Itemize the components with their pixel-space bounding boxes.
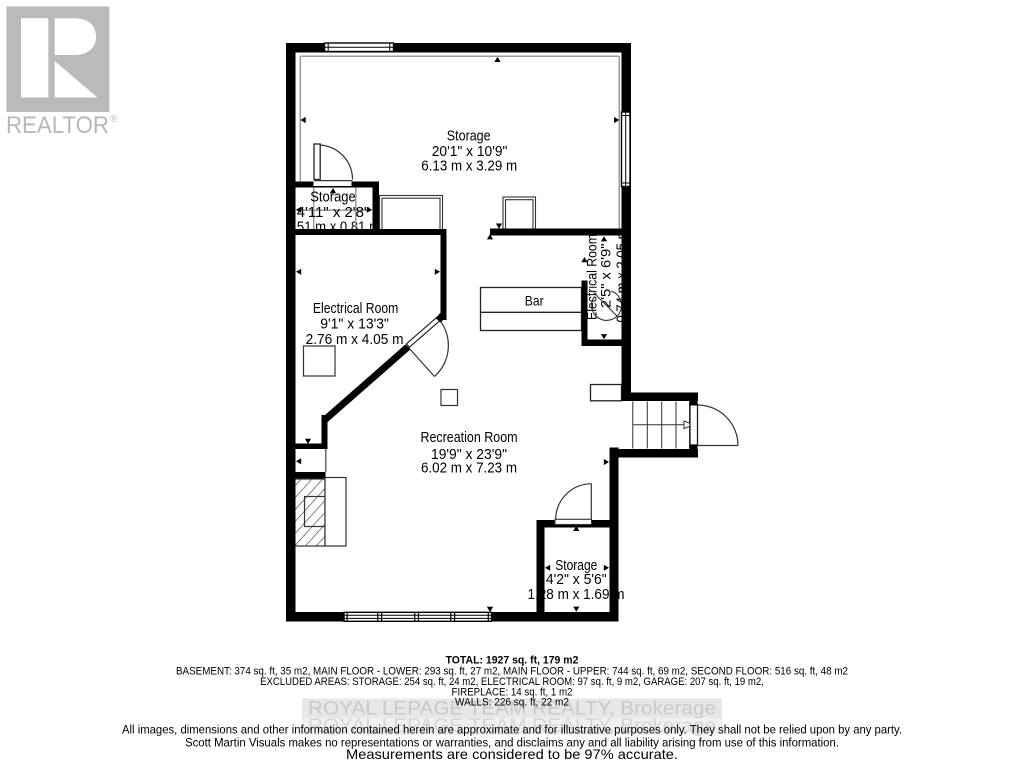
svg-text:WALLS: 226 sq. ft, 22 m2: WALLS: 226 sq. ft, 22 m2 (455, 696, 569, 708)
svg-text:®: ® (110, 114, 118, 125)
svg-text:REALTOR: REALTOR (6, 112, 109, 139)
svg-text:Measurements are considered to: Measurements are considered to be 97% ac… (346, 747, 678, 762)
svg-text:TOTAL: 1927 sq. ft, 179 m2: TOTAL: 1927 sq. ft, 179 m2 (446, 654, 579, 666)
svg-text:6.13 m x 3.29 m: 6.13 m x 3.29 m (421, 159, 517, 175)
svg-text:Storage: Storage (447, 129, 491, 145)
svg-text:6.02 m x 7.23 m: 6.02 m x 7.23 m (421, 460, 517, 476)
svg-text:4'2" x 5'6": 4'2" x 5'6" (546, 572, 607, 588)
svg-text:Recreation Room: Recreation Room (420, 430, 517, 446)
svg-text:20'1" x 10'9": 20'1" x 10'9" (432, 144, 508, 160)
svg-text:Electrical Room: Electrical Room (313, 301, 398, 317)
svg-text:9'1" x 13'3": 9'1" x 13'3" (320, 317, 389, 333)
svg-text:4'11" x 2'8": 4'11" x 2'8" (297, 205, 370, 221)
svg-text:2.76 m x 4.05 m: 2.76 m x 4.05 m (306, 332, 404, 348)
svg-text:Bar: Bar (525, 293, 544, 309)
svg-text:2'5" x 6'9": 2'5" x 6'9" (599, 243, 614, 308)
svg-text:Storage: Storage (310, 190, 356, 206)
svg-text:All images, dimensions and oth: All images, dimensions and other informa… (122, 723, 902, 737)
